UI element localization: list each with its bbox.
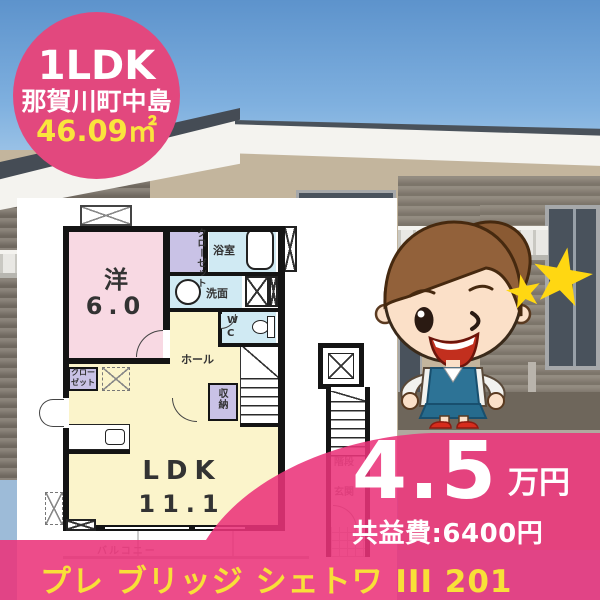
- price-block: 4.5 万円 共益費:6400円: [352, 436, 597, 550]
- badge-area: 46.09㎡: [36, 117, 157, 146]
- property-badge: 1LDK 那賀川町中島 46.09㎡: [13, 12, 180, 179]
- building-name: プレ ブリッジ シェトワ III 201: [40, 556, 440, 600]
- rent-row: 4.5 万円: [352, 436, 597, 507]
- rent-unit: 万円: [508, 468, 570, 499]
- badge-location: 那賀川町中島: [21, 89, 171, 114]
- badge-layout: 1LDK: [38, 46, 156, 86]
- rent-value: 4.5: [352, 436, 498, 507]
- listing-promo-image: 階段 玄関 洋 6.0 クローゼット 浴室 洗面 W C ホール 収納 クローゼ…: [0, 0, 600, 600]
- common-fee: 共益費:6400円: [352, 513, 597, 550]
